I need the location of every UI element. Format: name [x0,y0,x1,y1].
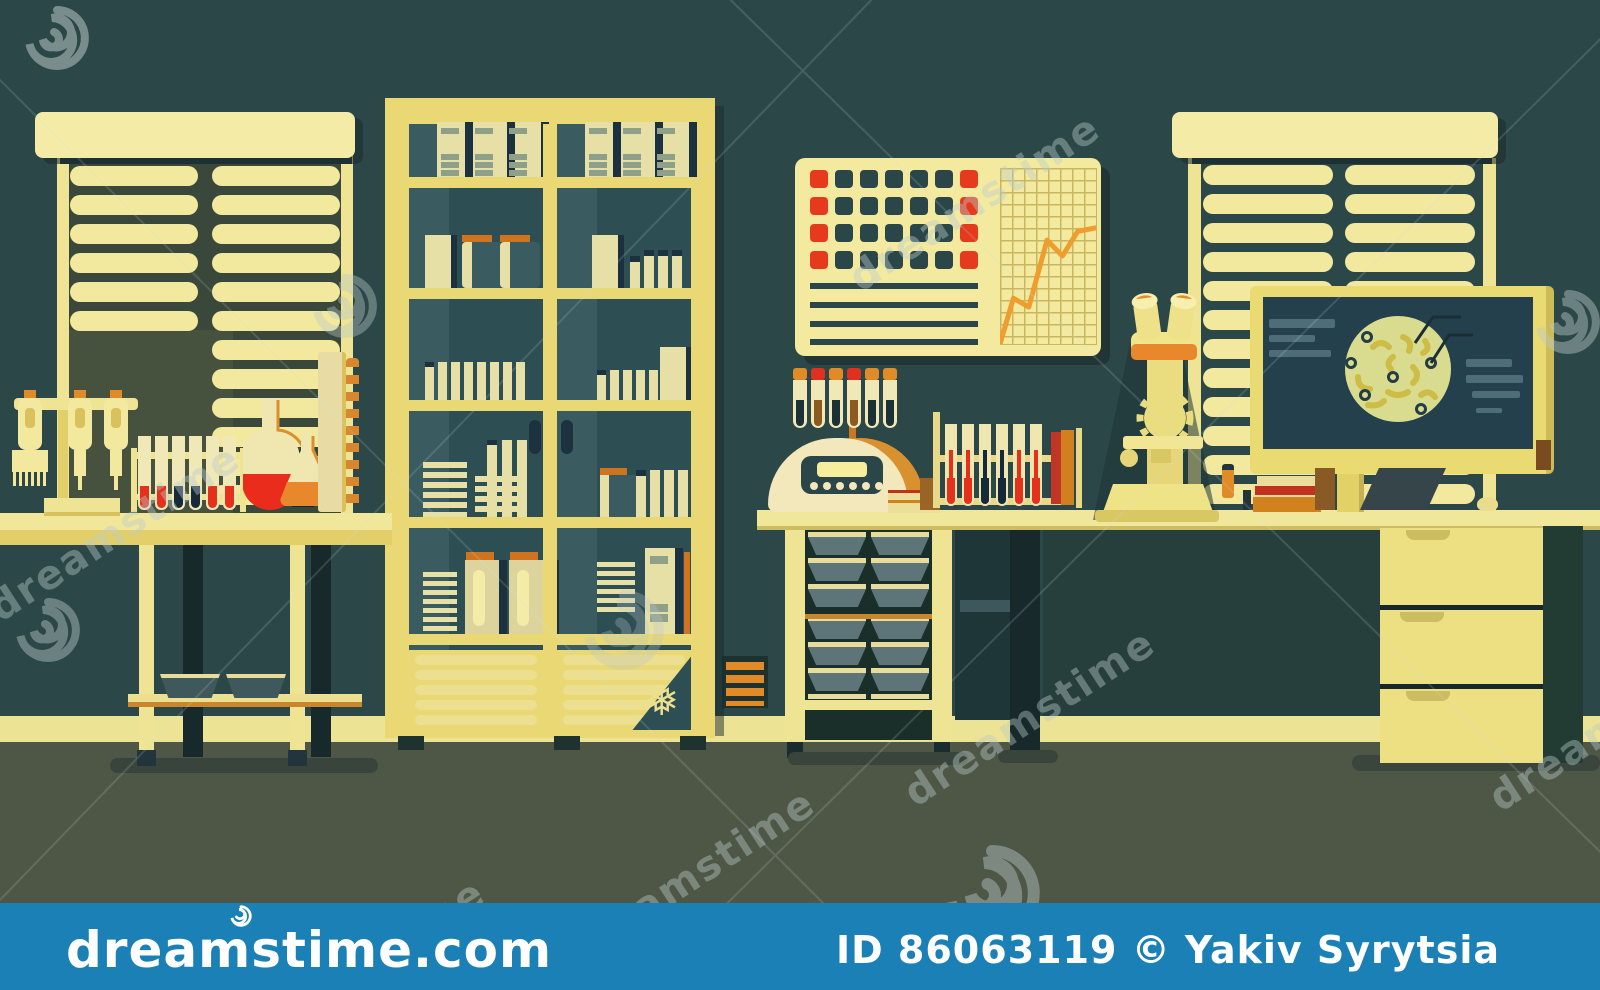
cabinet-center-stile [543,124,557,650]
left-bench-front-legs [139,545,154,755]
rack-end-post [1076,428,1082,508]
left-bench-rear-legs [183,545,203,757]
rack-tube-6-liquid [1032,478,1040,504]
left-rack-tube-3-liquid [174,486,183,508]
rack-tube-3-stem [983,450,987,480]
right-blinds-column-right [1345,165,1475,185]
left-bench-tray-2 [226,674,286,698]
microscope-stage [1123,436,1203,449]
board-calendar-red-squares [810,170,828,188]
mouse [1477,497,1498,511]
microscope-foot [1095,510,1219,522]
sample-tube-1-cap [793,368,807,380]
cabinet-feet [398,736,424,750]
cabinet-jar-row2-b-lid [500,235,530,242]
left-blinds-column-right [212,166,340,186]
left-rack-tube-5-liquid [208,486,217,508]
wall-heater-bars [726,662,764,706]
sample-tube-2-fill [814,400,822,426]
rack-tube-4-stem [1000,450,1004,480]
cabinet-jar-row4-right [600,475,636,517]
pipette-1-slot [25,408,35,428]
rack-tube-2-stem [966,450,970,480]
cabinet-lid-row5-right [684,552,690,634]
cabinet-handle-left [529,420,541,454]
cabinet-lid-row5-left [466,552,494,560]
pipette-3-slot [111,408,121,428]
cabinet-binders-row1-left-labels [441,128,459,134]
cabinet-box-row2-right [592,235,624,288]
rack-end-book-orange [1061,430,1074,505]
sample-tube-6-cap [883,368,897,380]
left-rack-tube-1-liquid [140,486,149,508]
cabinet-stack-row4-left [423,462,467,468]
center-tray-f [871,589,929,607]
pipette-2-stem [74,450,86,476]
center-rack-divider [805,614,932,619]
cabinet-handle-right [561,420,573,454]
dreamstime-logo: dreamstime.com [66,921,552,979]
left-window-valance [35,112,355,158]
center-tray-l [871,673,929,691]
pipette-3-tip [114,476,118,490]
center-tray-h [871,621,929,639]
pipette-1-head [12,450,48,472]
left-rack-tube-6-liquid [225,486,234,508]
microscope-focus-knob [1120,449,1138,467]
desk-book-orange [1253,495,1321,512]
center-tray-b [871,537,929,555]
cabinet-shadow [715,106,724,736]
cabinet-box-row3-right [660,347,691,400]
dreamstime-logo-spiral-icon [228,903,254,929]
rack-tube-2-liquid [964,478,972,504]
board-text-lines [810,283,978,289]
left-rack-tube-2-liquid [157,486,166,508]
sample-tube-3-cap [829,368,843,380]
microscope-substage [1151,449,1171,463]
left-bench-lower-shelf-edge [128,702,362,707]
sample-tube-5-cap [865,368,879,380]
graduated-cylinder [318,352,346,512]
speaker-box [1536,440,1551,470]
center-tray-g [808,621,866,639]
cabinet-vials-row4-right [636,470,646,523]
drawer-3-handle [1406,691,1450,701]
cabinet-vials-row4-left [487,440,497,521]
under-bench-cabinet [955,528,1017,720]
laboratory-illustration: ❅ [0,0,1600,990]
pipette-1-teeth [13,472,47,486]
cabinet-glass-right-reflection [557,124,597,650]
centrifuge-screen [817,462,867,477]
rack-tube-1-liquid [947,478,955,504]
center-tray-e [808,589,866,607]
sample-tube-5-fill [868,400,876,426]
microscope-base [1103,484,1213,512]
rack-tube-5-liquid [1015,478,1023,504]
left-rack-tube-4-liquid [191,486,200,508]
center-tray-j [871,647,929,665]
cabinet-jar-row4-right-lid [600,468,627,475]
cabinet-vent-right [563,655,685,665]
left-blinds-column-left [70,166,198,186]
snowflake-icon: ❅ [644,680,679,722]
board-calendar-dark-squares [835,170,853,188]
cabinet-vent-left [415,655,537,665]
center-rack-floor-shadow [788,752,968,765]
cabinet-jar-row2-a-lid [462,235,492,242]
cabinet-binders-row1-right-labels [589,128,607,134]
rack-tube-3-liquid [981,478,989,504]
rack-tube-4-liquid [998,478,1006,504]
microbe-dish [1345,316,1451,422]
cylinder-scale-hooks [346,358,359,510]
spiral-watermark [30,10,85,66]
cabinet-box-row5-right-label [650,556,668,564]
monitor-screen-content [1263,297,1533,449]
spiral-watermark [21,602,76,658]
microscope-collar [1131,344,1197,360]
cabinet-jar-row2-a [462,242,502,288]
left-bench-tray-1 [160,674,220,698]
microscope-gear [1144,397,1186,439]
left-bench-feet [137,750,156,766]
left-rack-posts [131,448,137,512]
center-bench-leg-shadow [998,750,1058,763]
cabinet-boxes-row5-left [465,560,507,634]
drawer-1 [1380,528,1543,610]
cabinet-jar-row2-b [500,242,540,288]
pipette-stand-pole [58,410,68,500]
centrifuge-buttons [810,482,818,490]
center-trays-rims [808,532,866,537]
sample-tube-4-fill [850,400,858,426]
pipette-3-stem [110,450,122,476]
cabinet-lines-row5-left [423,572,457,577]
footer-image-id: ID 86063119 [836,928,1117,972]
sample-tube-6-fill [886,400,894,426]
cabinet-handle-row5-a [473,570,485,626]
desk-book-top [1257,476,1317,484]
cabinet-ampoules-row3-left [425,362,434,405]
under-bench-cabinet-slot [960,600,1010,612]
drawer-2 [1380,610,1543,689]
sample-tube-4-cap [847,368,861,380]
cabinet-lines-row5-right [597,562,635,567]
drawer-2-handle [1400,612,1444,622]
center-trays-bodies [808,537,866,555]
rack-tube-6-stem [1034,450,1038,480]
footer-image-credit: ID 86063119 © Yakiv Syrytsia [836,928,1500,972]
keyboard [1360,468,1446,510]
microscope [1085,288,1230,523]
pipette-stand-base [44,498,120,516]
sample-tube-3-fill [832,400,840,426]
center-tray-i [808,647,866,665]
cabinet-box-row2-left [425,235,457,288]
center-tray-d [871,563,929,581]
footer-copyright: © Yakiv Syrytsia [1132,928,1500,972]
rack-tube-5-stem [1017,450,1021,480]
center-rack-bottom-bar [785,700,952,710]
drawer-unit-side [1543,526,1583,763]
center-bench-leg [1010,528,1040,756]
drawer-1-handle [1406,530,1450,540]
monitor-stand [1337,474,1364,512]
sample-tube-1-fill [796,400,804,426]
right-window-valance [1172,112,1498,158]
desk-pens [1243,490,1251,510]
sample-tube-2-cap [811,368,825,380]
desk-bottle [1222,464,1234,498]
pipette-2-slot [75,408,85,428]
center-tray-c [808,563,866,581]
right-blinds-column-left [1203,165,1333,185]
rack-end-book-red [1051,432,1061,504]
desk-bookend [1315,468,1335,510]
rack-tube-1-stem [949,450,953,480]
board-line-chart [1000,168,1096,344]
drawer-3 [1380,689,1543,763]
left-bench-edge [0,530,392,545]
pipette-2-tip [78,476,82,490]
center-tray-k [808,673,866,691]
